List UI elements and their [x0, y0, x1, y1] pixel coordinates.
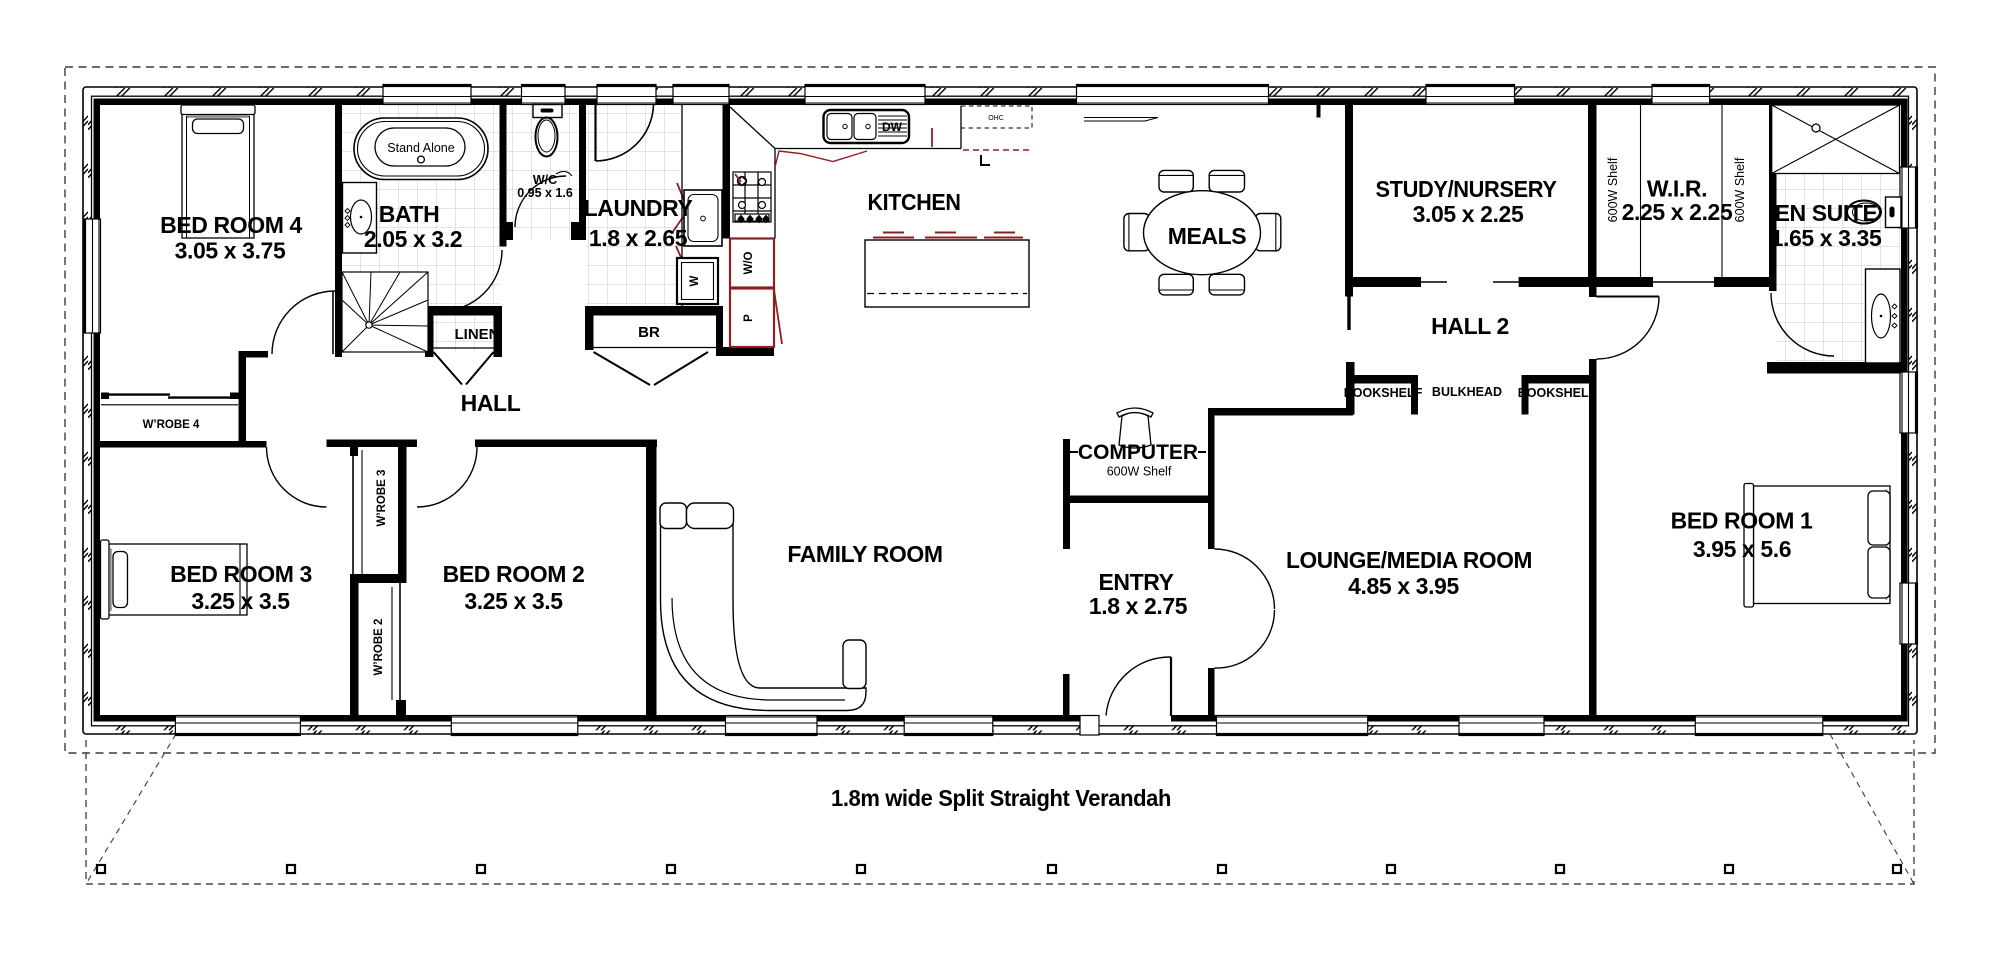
svg-text:1.8m wide Split Straight Veran: 1.8m wide Split Straight Verandah: [831, 785, 1171, 811]
svg-text:3.95 x 5.6: 3.95 x 5.6: [1693, 536, 1791, 562]
svg-text:LAUNDRY: LAUNDRY: [584, 195, 693, 221]
svg-text:3.25 x 3.5: 3.25 x 3.5: [191, 588, 290, 614]
svg-text:W/C: W/C: [533, 173, 557, 187]
svg-text:HALL 2: HALL 2: [1431, 313, 1509, 339]
svg-text:1.8 x 2.65: 1.8 x 2.65: [589, 225, 688, 251]
svg-text:W’ROBE 3: W’ROBE 3: [376, 470, 388, 527]
svg-text:600W Shelf: 600W Shelf: [1107, 465, 1172, 479]
svg-text:BED ROOM 2: BED ROOM 2: [443, 561, 585, 587]
svg-text:HALL: HALL: [461, 390, 521, 416]
svg-text:DW: DW: [882, 120, 903, 134]
svg-text:LOUNGE/MEDIA ROOM: LOUNGE/MEDIA ROOM: [1286, 547, 1532, 573]
svg-text:Stand Alone: Stand Alone: [387, 141, 454, 155]
svg-text:BATH: BATH: [379, 201, 440, 227]
svg-text:1.65 x 3.35: 1.65 x 3.35: [1771, 225, 1882, 251]
svg-text:3.25 x 3.5: 3.25 x 3.5: [464, 588, 563, 614]
svg-text:BED ROOM 1: BED ROOM 1: [1671, 508, 1813, 534]
svg-text:0.95 x 1.6: 0.95 x 1.6: [517, 186, 573, 200]
svg-text:3.05 x 2.25: 3.05 x 2.25: [1413, 201, 1524, 227]
svg-text:BOOKSHELF: BOOKSHELF: [1344, 386, 1423, 400]
svg-text:W’ROBE 2: W’ROBE 2: [373, 619, 385, 676]
svg-text:BOOKSHELF: BOOKSHELF: [1518, 386, 1597, 400]
svg-text:OHC: OHC: [988, 115, 1004, 122]
svg-text:4.85 x 3.95: 4.85 x 3.95: [1348, 573, 1459, 599]
svg-text:KITCHEN: KITCHEN: [868, 189, 961, 215]
svg-text:2.05 x 3.2: 2.05 x 3.2: [364, 226, 462, 252]
svg-text:3.05 x 3.75: 3.05 x 3.75: [175, 238, 286, 264]
svg-text:P: P: [743, 314, 755, 322]
svg-text:2.25 x 2.25: 2.25 x 2.25: [1622, 199, 1733, 225]
svg-text:LINEN: LINEN: [455, 326, 500, 343]
svg-text:W: W: [689, 275, 701, 286]
svg-text:W.I.R.: W.I.R.: [1647, 176, 1707, 202]
svg-text:BED ROOM 3: BED ROOM 3: [170, 561, 312, 587]
svg-text:COMPUTER: COMPUTER: [1078, 441, 1198, 464]
svg-text:W/O: W/O: [743, 251, 755, 274]
svg-text:BED ROOM 4: BED ROOM 4: [160, 212, 302, 238]
svg-text:W’ROBE 4: W’ROBE 4: [143, 419, 200, 431]
svg-text:STUDY/NURSERY: STUDY/NURSERY: [1376, 176, 1557, 202]
svg-text:600W Shelf: 600W Shelf: [1733, 157, 1747, 222]
svg-text:BULKHEAD: BULKHEAD: [1432, 385, 1502, 399]
svg-text:600W Shelf: 600W Shelf: [1606, 157, 1620, 222]
svg-text:ENTRY: ENTRY: [1098, 569, 1173, 595]
svg-text:FAMILY ROOM: FAMILY ROOM: [787, 541, 942, 567]
svg-text:1.8 x 2.75: 1.8 x 2.75: [1089, 593, 1188, 619]
svg-text:MEALS: MEALS: [1168, 223, 1247, 249]
svg-text:EN SUITE: EN SUITE: [1775, 200, 1878, 226]
svg-text:BR: BR: [638, 324, 660, 341]
